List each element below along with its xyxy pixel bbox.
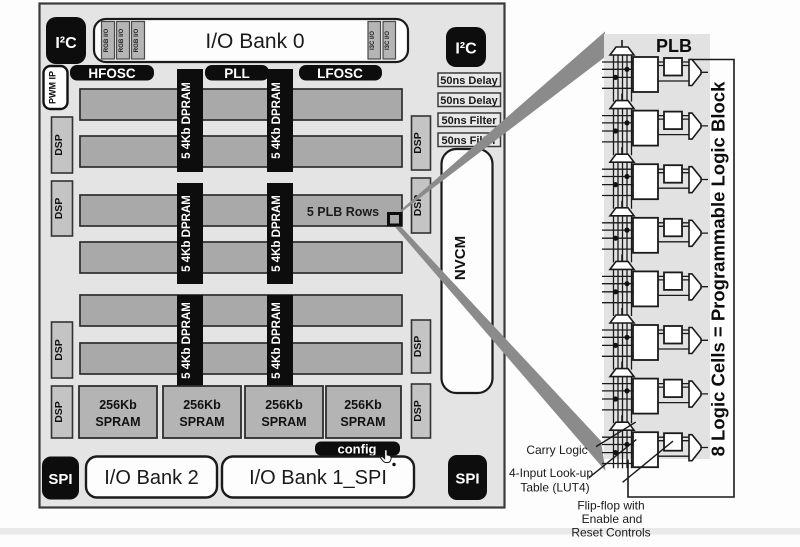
svg-text:5 4Kb DPRAM: 5 4Kb DPRAM [181,195,193,272]
svg-text:256Kb: 256Kb [183,398,221,412]
svg-text:I/O Bank 2: I/O Bank 2 [104,467,199,489]
svg-text:SPI: SPI [48,471,72,488]
svg-text:Enable and: Enable and [582,512,643,526]
svg-text:I3C I/O: I3C I/O [385,31,391,50]
svg-text:50ns Delay: 50ns Delay [440,95,498,107]
svg-text:SPRAM: SPRAM [261,415,306,429]
svg-text:4-Input Look-up: 4-Input Look-up [509,466,593,480]
svg-text:SPRAM: SPRAM [95,415,140,429]
svg-text:DSP: DSP [53,198,65,220]
svg-text:RGB I/O: RGB I/O [103,28,110,52]
svg-text:RGB I/O: RGB I/O [118,28,125,52]
svg-text:5 4Kb DPRAM: 5 4Kb DPRAM [271,195,283,272]
svg-text:HFOSC: HFOSC [88,66,136,81]
svg-text:RGB I/O: RGB I/O [133,28,140,52]
svg-text:8 Logic Cells = Programmable L: 8 Logic Cells = Programmable Logic Block [708,81,729,456]
svg-text:5 4Kb DPRAM: 5 4Kb DPRAM [271,82,283,159]
svg-text:PWM IP: PWM IP [48,71,58,104]
svg-text:256Kb: 256Kb [344,398,382,412]
svg-text:I²C: I²C [455,41,477,58]
svg-text:DSP: DSP [53,134,65,156]
svg-text:256Kb: 256Kb [265,398,303,412]
svg-text:SPRAM: SPRAM [179,415,224,429]
svg-text:I²C: I²C [55,35,77,52]
svg-text:I/O Bank 1_SPI: I/O Bank 1_SPI [249,467,387,489]
svg-text:SPRAM: SPRAM [340,415,385,429]
svg-text:I/O Bank 0: I/O Bank 0 [205,30,304,53]
svg-text:NVCM: NVCM [452,236,469,280]
svg-text:Reset Controls: Reset Controls [571,526,650,540]
svg-text:5 4Kb DPRAM: 5 4Kb DPRAM [271,302,283,379]
svg-text:LFOSC: LFOSC [317,66,363,81]
svg-text:5 4Kb DPRAM: 5 4Kb DPRAM [181,82,193,159]
svg-text:DSP: DSP [412,132,424,154]
svg-text:50ns Delay: 50ns Delay [440,75,498,87]
svg-text:config: config [338,442,377,457]
svg-text:DSP: DSP [53,401,65,423]
svg-text:I3C I/O: I3C I/O [370,31,376,50]
svg-text:DSP: DSP [53,339,65,361]
svg-text:Flip-flop with: Flip-flop with [577,499,644,513]
svg-text:Table (LUT4): Table (LUT4) [520,481,589,495]
svg-text:5 4Kb DPRAM: 5 4Kb DPRAM [181,302,193,379]
svg-text:Carry Logic: Carry Logic [526,443,587,457]
svg-text:PLL: PLL [224,66,250,81]
svg-text:SPI: SPI [455,471,479,488]
svg-text:5 PLB Rows: 5 PLB Rows [307,205,379,219]
svg-text:50ns Filter: 50ns Filter [441,115,497,127]
svg-text:256Kb: 256Kb [99,398,137,412]
svg-text:DSP: DSP [412,336,424,358]
svg-text:PLB: PLB [656,36,692,56]
svg-text:DSP: DSP [412,400,424,422]
